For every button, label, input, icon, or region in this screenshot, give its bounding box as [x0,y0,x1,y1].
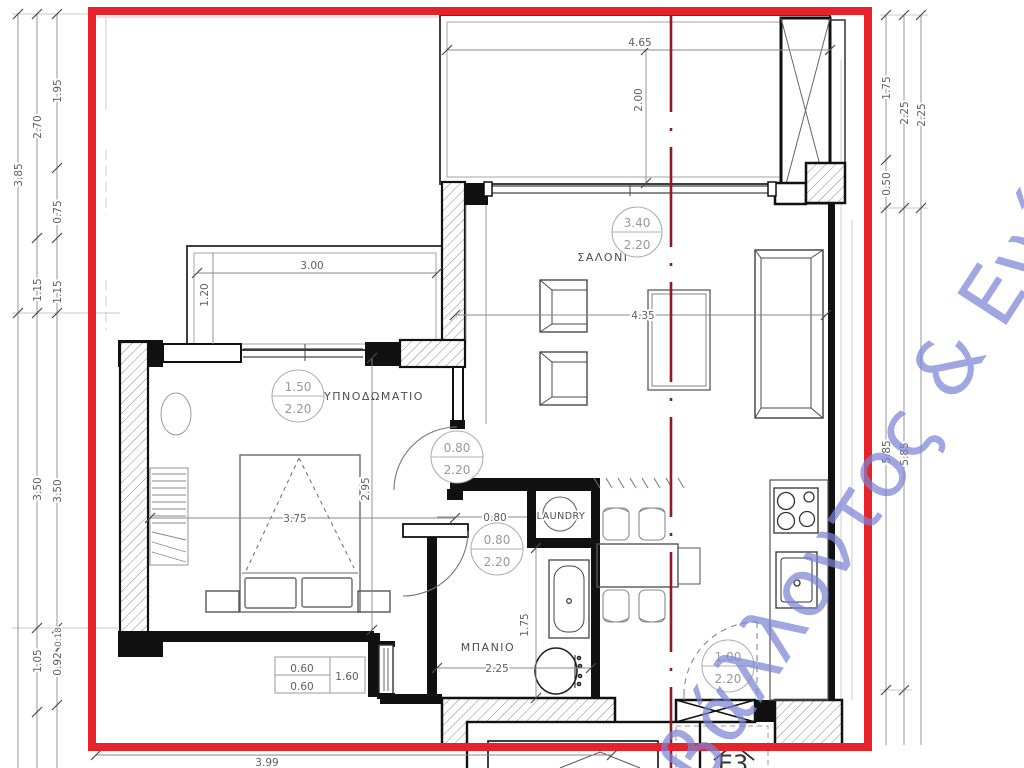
dining-chairs [603,508,665,622]
svg-text:3.40: 3.40 [624,216,651,230]
dim-balcony-3.00: 3.00 [300,260,323,272]
floor-plan-page: E3 [0,0,1024,768]
dim-top-4.65: 4.65 [628,37,651,49]
dim-right-0.50: 0.50 [881,172,893,195]
window-width-label: 0.60 [290,663,313,675]
window-width2-label: 0.60 [290,681,313,693]
wall-pillar [775,183,806,204]
living-window [463,182,776,205]
svg-text:0.80: 0.80 [484,533,511,547]
laundry-label: LAUNDRY [537,511,586,522]
nightstands [206,591,390,612]
bathtub [549,560,589,638]
svg-text:0.80: 0.80 [444,441,471,455]
dim-bedroom-3.75: 3.75 [283,513,306,525]
svg-text:2.20: 2.20 [484,555,511,569]
floor-plan-drawing: E3 [0,0,1024,768]
dim-bottom-3.99: 3.99 [255,757,278,768]
dim-bathdoor-0.80: 0.80 [483,512,506,524]
bedroom-chair [161,393,191,435]
living-bubble: 3.40 2.20 [612,207,662,257]
dim-left-1.15b: 1.15 [52,280,64,303]
dim-bath-1.75: 1.75 [519,613,531,636]
dim-left-1.95: 1.95 [52,79,64,102]
bath-label: ΜΠΑΝΙΟ [461,641,515,654]
dim-balcony-1.20: 1.20 [199,283,211,306]
bath-door-bubble: 0.80 2.20 [471,523,523,575]
svg-text:2.20: 2.20 [285,402,312,416]
dining-table [597,544,700,587]
coffee-table [648,290,710,390]
living-label: ΣΑΛΟΝΙ [577,251,628,264]
dim-top-2.00: 2.00 [633,88,645,111]
dim-left-1.15a: 1.15 [32,278,44,301]
niche-lines [466,205,486,424]
window-length-label: 1.60 [335,671,358,683]
dim-left-0.75: 0.75 [52,200,64,223]
bedroom-door-bubble: 0.80 2.20 [431,431,483,483]
svg-text:1.50: 1.50 [285,380,312,394]
dim-left-3.50a: 3.50 [32,477,44,500]
dim-left-2.70: 2.70 [32,115,44,138]
dim-left-0.18: 0.18 [54,627,64,647]
toilet [535,648,582,694]
wardrobe [150,468,188,565]
armchairs [540,280,587,405]
dim-left-3.50b: 3.50 [52,479,64,502]
dim-living-4.35: 4.35 [631,310,654,322]
hatched-wall-block [806,163,845,203]
sofa [755,250,823,418]
bedroom-label: ΥΠΝΟΔΩΜΑΤΙΟ [323,390,424,403]
dim-left-3.85: 3.85 [13,163,25,186]
dim-left-0.92: 0.92 [52,652,64,675]
dim-bath-2.25: 2.25 [485,663,508,675]
dim-right-2.25b: 2.25 [916,103,928,126]
dim-right-2.25a: 2.25 [899,101,911,124]
svg-text:2.20: 2.20 [444,463,471,477]
dim-right-1.75: 1.75 [881,76,893,99]
bedroom-bubble: 1.50 2.20 [272,370,324,422]
bed [240,455,360,612]
dim-bubbles: 3.40 2.20 1.50 2.20 0.80 2.20 0.80 2.20 … [272,207,754,692]
dim-bedroom-2.95: 2.95 [360,477,372,500]
dim-left-1.05: 1.05 [32,649,44,672]
svg-text:2.20: 2.20 [624,238,651,252]
